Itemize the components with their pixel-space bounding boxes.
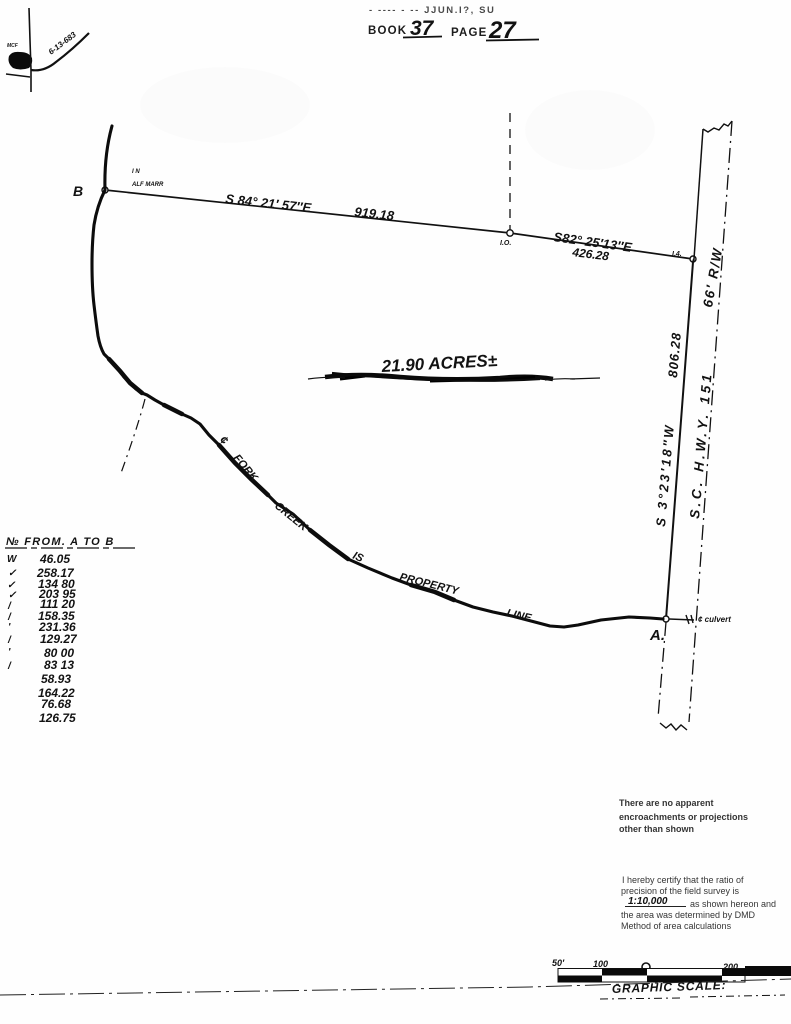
svg-text:- ---- - -- JJUN.I?, SU: - ---- - -- JJUN.I?, SU [369, 5, 496, 16]
svg-text:precision of the field survey: precision of the field survey is [621, 886, 740, 896]
svg-text:46.05: 46.05 [39, 552, 70, 566]
svg-text:MCF: MCF [7, 43, 19, 49]
svg-text:I.O.: I.O. [500, 240, 511, 247]
svg-text:A.: A. [649, 627, 665, 644]
svg-text:Method of area calculations: Method of area calculations [621, 921, 732, 931]
svg-text:76.68: 76.68 [41, 697, 71, 711]
svg-text:as shown hereon and: as shown hereon and [690, 899, 776, 909]
svg-text:✓: ✓ [8, 568, 17, 579]
svg-text:129.27: 129.27 [40, 632, 78, 646]
svg-text:№ FROM. A TO B: № FROM. A TO B [6, 536, 115, 548]
svg-text:100: 100 [593, 959, 608, 969]
svg-text:encroachments or projections: encroachments or projections [619, 812, 748, 822]
svg-text:50′: 50′ [552, 958, 565, 968]
svg-text:ALF MARR: ALF MARR [131, 182, 164, 188]
svg-text:other than shown: other than shown [619, 824, 694, 834]
svg-text:83 13: 83 13 [44, 658, 74, 672]
svg-text:There are no apparent: There are no apparent [619, 798, 714, 808]
svg-text:¢ culvert: ¢ culvert [698, 615, 731, 624]
svg-text:B: B [73, 183, 83, 199]
svg-text:1:10,000: 1:10,000 [628, 896, 668, 907]
svg-text:BOOK: BOOK [368, 25, 407, 37]
svg-text:I.4.: I.4. [672, 251, 682, 258]
svg-text:126.75: 126.75 [39, 711, 76, 725]
svg-text:PAGE: PAGE [451, 27, 488, 39]
svg-text:58.93: 58.93 [41, 672, 71, 686]
svg-text:I N: I N [132, 169, 140, 175]
svg-text:I hereby certify that the rati: I hereby certify that the ratio of [622, 875, 744, 885]
svg-text:the area was determined by DMD: the area was determined by DMD [621, 910, 756, 920]
svg-text:W: W [7, 554, 18, 565]
svg-text:✓: ✓ [8, 590, 17, 601]
